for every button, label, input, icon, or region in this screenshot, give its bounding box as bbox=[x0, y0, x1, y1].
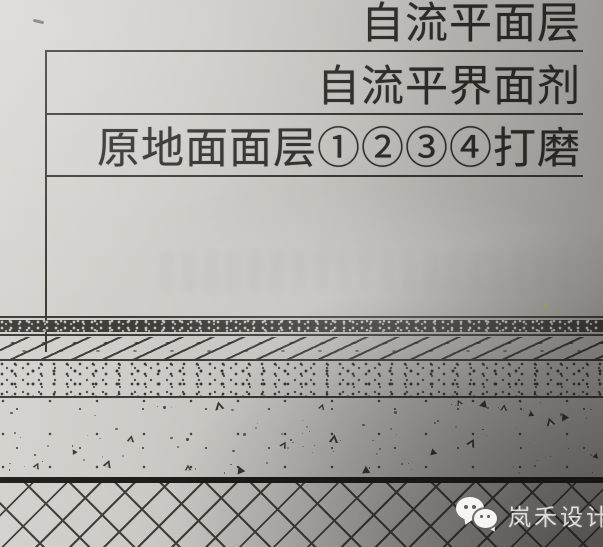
concrete-grain bbox=[396, 434, 397, 435]
aggregate-triangle bbox=[235, 464, 246, 474]
concrete-grain bbox=[362, 424, 364, 426]
concrete-grain bbox=[487, 407, 489, 409]
concrete-grain bbox=[455, 405, 456, 406]
concrete-grain bbox=[560, 413, 562, 415]
wechat-icon bbox=[456, 496, 500, 534]
concrete-grain bbox=[455, 426, 457, 428]
concrete-grain bbox=[24, 466, 25, 467]
concrete-grain bbox=[14, 432, 16, 434]
concrete-grain bbox=[96, 466, 98, 468]
watermark-brand: 岚禾设计 bbox=[508, 498, 603, 532]
concrete-grain bbox=[309, 431, 310, 432]
concrete-grain bbox=[520, 401, 522, 403]
aggregate-triangle bbox=[545, 416, 556, 426]
aggregate-triangle bbox=[33, 461, 42, 469]
concrete-grain bbox=[434, 422, 436, 424]
aggregate-triangle bbox=[185, 465, 192, 471]
concrete-grain bbox=[404, 459, 405, 460]
concrete-grain bbox=[287, 447, 289, 449]
pencil-speck bbox=[33, 19, 44, 25]
aggregate-triangle bbox=[318, 403, 326, 410]
concrete-grain bbox=[292, 442, 294, 444]
concrete-band bbox=[0, 398, 603, 477]
aggregate-triangle bbox=[466, 437, 478, 448]
concrete-grain bbox=[87, 435, 88, 436]
original-floor-finish-band bbox=[0, 337, 603, 361]
concrete-grain bbox=[243, 433, 245, 435]
concrete-grain bbox=[177, 446, 179, 448]
concrete-grain bbox=[568, 448, 569, 449]
aggregate-triangle bbox=[528, 411, 534, 417]
concrete-grain bbox=[122, 455, 124, 457]
callout-label-interface-agent: 自流平界面剂 bbox=[317, 66, 583, 113]
concrete-grain bbox=[372, 440, 374, 442]
concrete-grain bbox=[34, 454, 36, 456]
concrete-grain bbox=[306, 426, 308, 428]
concrete-grain bbox=[451, 404, 452, 405]
page-showthrough bbox=[160, 252, 580, 292]
dust-speck bbox=[543, 304, 547, 307]
concrete-grain bbox=[170, 437, 172, 439]
concrete-grain bbox=[312, 452, 313, 453]
concrete-grain bbox=[157, 406, 158, 407]
callout-row-self-leveling-surface: 自流平面层 bbox=[45, 0, 583, 52]
concrete-grain bbox=[9, 469, 11, 471]
aggregate-triangle bbox=[70, 448, 77, 455]
concrete-grain bbox=[333, 451, 335, 453]
concrete-grain bbox=[513, 466, 515, 468]
aggregate-triangle bbox=[455, 399, 463, 406]
callout-row-original-floor: 原地面面层①②③④打磨 bbox=[45, 119, 583, 177]
concrete-grain bbox=[590, 454, 592, 456]
concrete-grain bbox=[401, 463, 403, 465]
self-leveling-top-line bbox=[0, 316, 603, 318]
concrete-grain bbox=[281, 433, 283, 435]
aggregate-triangle bbox=[127, 435, 136, 443]
concrete-grain bbox=[369, 467, 370, 468]
callout-label-self-leveling-surface: 自流平面层 bbox=[361, 3, 583, 50]
aggregate-triangle bbox=[214, 400, 225, 410]
concrete-grain bbox=[394, 411, 397, 414]
concrete-grain bbox=[20, 437, 21, 438]
concrete-grain bbox=[83, 459, 85, 461]
concrete-grain bbox=[42, 461, 43, 462]
concrete-grain bbox=[115, 428, 117, 430]
concrete-grain bbox=[47, 445, 49, 447]
concrete-grain bbox=[195, 468, 197, 470]
callout-label-original-floor: 原地面面层①②③④打磨 bbox=[97, 128, 583, 175]
concrete-grain bbox=[590, 409, 592, 411]
concrete-grain bbox=[537, 460, 538, 461]
leader-vertical-line bbox=[45, 52, 47, 352]
concrete-grain bbox=[376, 453, 378, 455]
concrete-grain bbox=[592, 472, 593, 473]
concrete-grain bbox=[186, 438, 188, 440]
concrete-grain bbox=[255, 427, 257, 429]
concrete-grain bbox=[518, 472, 520, 474]
concrete-grain bbox=[171, 407, 172, 408]
concrete-grain bbox=[482, 429, 484, 431]
self-leveling-surface-band bbox=[0, 320, 603, 332]
concrete-grain bbox=[302, 433, 304, 435]
concrete-grain bbox=[102, 456, 104, 458]
callout-row-interface-agent: 自流平界面剂 bbox=[45, 54, 583, 115]
concrete-grain bbox=[498, 407, 500, 409]
concrete-grain bbox=[515, 427, 516, 428]
concrete-grain bbox=[486, 435, 487, 436]
concrete-grain bbox=[340, 440, 341, 441]
concrete-grain bbox=[99, 438, 101, 440]
concrete-grain bbox=[529, 410, 531, 412]
aggregate-triangle bbox=[329, 434, 339, 443]
construction-detail-photo: 自流平面层 自流平界面剂 原地面面层①②③④打磨 bbox=[0, 0, 603, 547]
concrete-grain bbox=[550, 456, 551, 457]
concrete-grain bbox=[224, 472, 225, 473]
concrete-grain bbox=[302, 446, 303, 447]
mortar-band bbox=[0, 362, 603, 396]
concrete-grain bbox=[529, 443, 530, 444]
interface-agent-line bbox=[0, 334, 603, 336]
aggregate-triangle bbox=[593, 452, 600, 458]
concrete-grain bbox=[231, 409, 233, 411]
concrete-grain bbox=[9, 463, 10, 464]
concrete-grain bbox=[266, 462, 268, 464]
concrete-grain bbox=[72, 445, 74, 447]
concrete-grain bbox=[232, 450, 234, 452]
concrete-grain bbox=[163, 406, 165, 408]
concrete-grain bbox=[379, 448, 381, 450]
concrete-grain bbox=[314, 445, 315, 446]
concrete-grain bbox=[534, 465, 536, 467]
concrete-grain bbox=[540, 402, 541, 403]
concrete-grain bbox=[230, 464, 231, 465]
concrete-grain bbox=[94, 415, 96, 417]
concrete-grain bbox=[290, 439, 292, 441]
aggregate-triangle bbox=[429, 448, 438, 456]
concrete-grain bbox=[411, 469, 412, 470]
concrete-grain bbox=[586, 417, 588, 419]
concrete-grain bbox=[408, 463, 409, 464]
concrete-grain bbox=[390, 428, 392, 430]
concrete-grain bbox=[437, 420, 439, 422]
watermark: 岚禾设计 bbox=[456, 496, 603, 534]
concrete-grain bbox=[302, 420, 303, 421]
aggregate-triangle bbox=[500, 404, 508, 411]
aggregate-triangle bbox=[103, 458, 114, 468]
concrete-grain bbox=[257, 423, 258, 424]
concrete-grain bbox=[523, 410, 524, 411]
concrete-grain bbox=[10, 412, 12, 414]
